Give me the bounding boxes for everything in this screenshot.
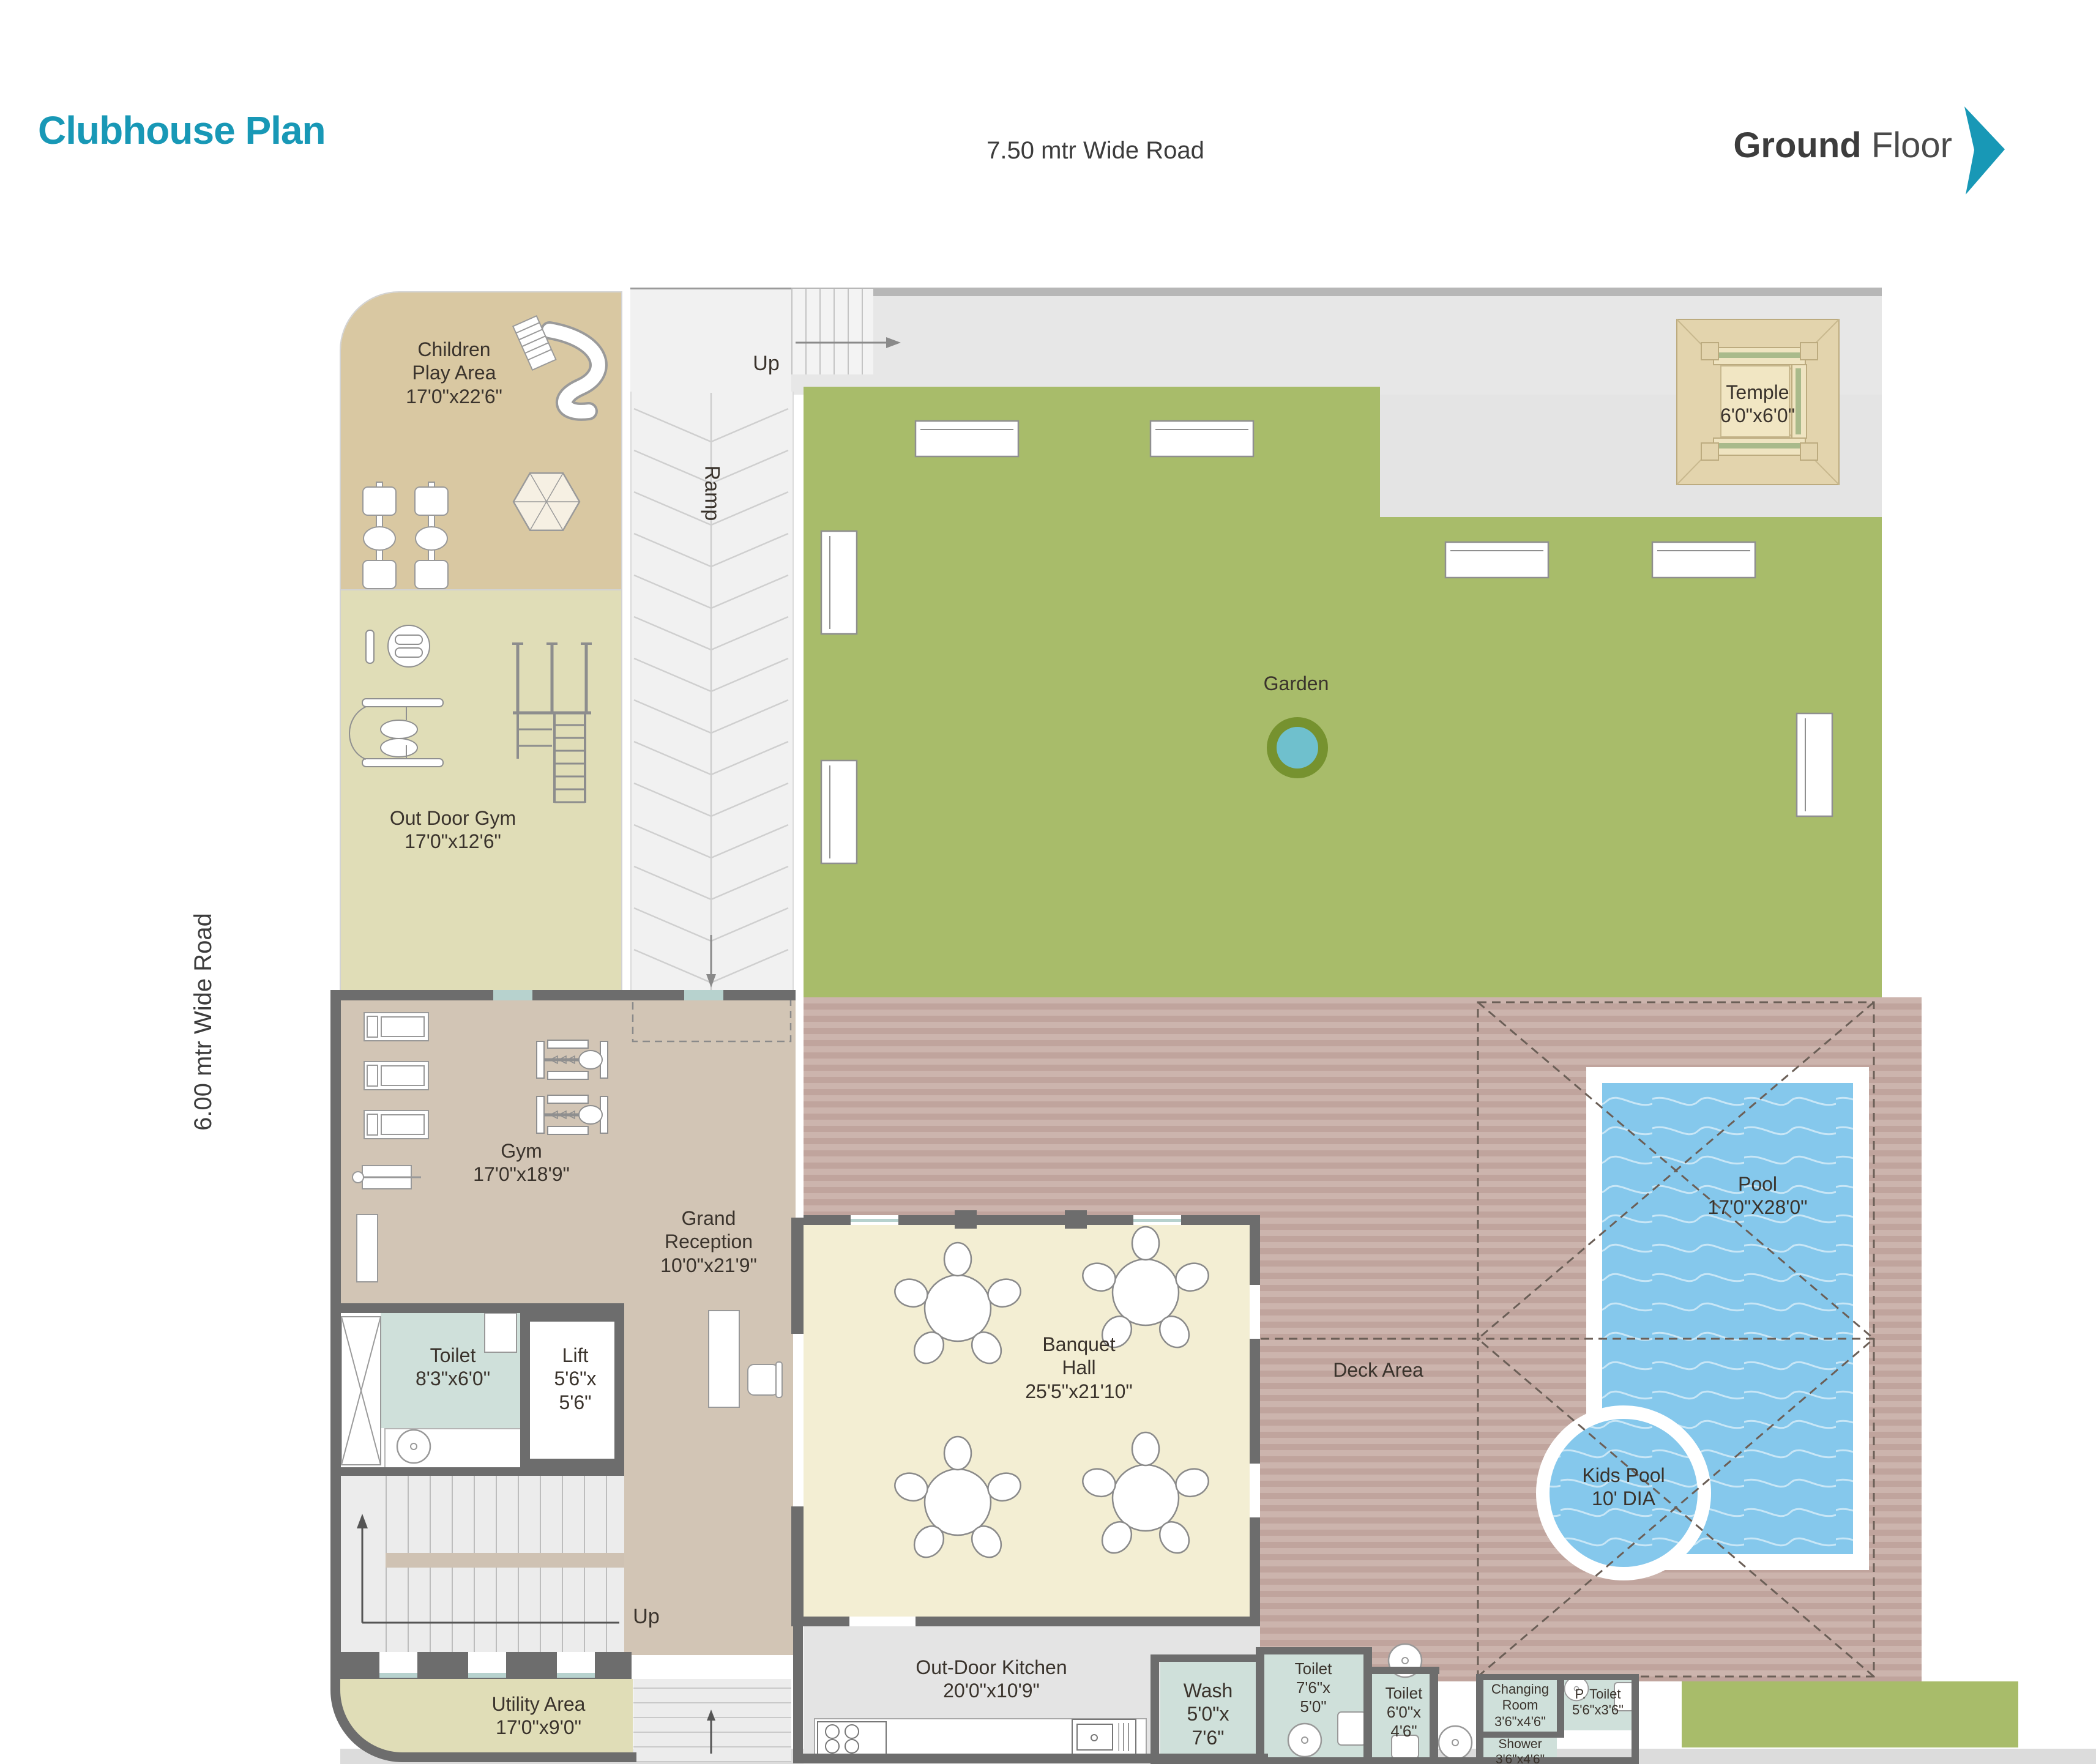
window-icon — [1133, 1219, 1181, 1222]
window-icon — [557, 1673, 595, 1678]
wash-label: Wash 5'0"x 7'6" — [1184, 1679, 1233, 1749]
clubhouse-floor-plan: Clubhouse Plan 7.50 mtr Wide Road Ground… — [0, 0, 2096, 1764]
temple-label: Temple 6'0"x6'0" — [1720, 381, 1795, 428]
gym-label: Gym 17'0"x18'9" — [473, 1139, 570, 1186]
wash-north-wall — [1151, 1654, 1264, 1662]
shower-label: Shower 3'6"x4'6" — [1496, 1736, 1545, 1764]
wall-notch — [557, 1652, 595, 1673]
toilet-block-north-wall — [330, 1303, 624, 1313]
temple-court — [1380, 395, 1882, 517]
page-title: Clubhouse Plan — [38, 108, 326, 153]
south-edge-wall — [1151, 1757, 1639, 1764]
road-label-left: 6.00 mtr Wide Road — [188, 913, 218, 1131]
kitchen-west-wall — [793, 1626, 803, 1757]
road-label-top: 7.50 mtr Wide Road — [986, 136, 1204, 165]
outdoor-gym-area — [341, 590, 621, 991]
window-icon — [684, 990, 723, 1000]
stairwell-north-wall — [330, 1467, 624, 1476]
wash-west-wall — [1151, 1654, 1159, 1758]
chevron-right-icon[interactable] — [1962, 105, 2007, 196]
ramp-label: Ramp — [699, 466, 725, 521]
kids-pool-label: Kids Pool 10' DIA — [1582, 1464, 1665, 1511]
reception-banquet-stub-n — [791, 1218, 804, 1334]
garden-area-east — [1380, 517, 1882, 997]
lift-east-wall — [614, 1313, 624, 1467]
outdoor-gym-label: Out Door Gym 17'0"x12'6" — [390, 806, 516, 854]
stairs-icon-utility — [633, 1679, 791, 1762]
west-outer-wall — [330, 990, 341, 1657]
changing-west-wall — [1476, 1674, 1483, 1764]
reception-banquet-stub-s — [791, 1506, 804, 1626]
banquet-east-wall — [1250, 1215, 1260, 1626]
floor-name-light: Floor — [1871, 125, 1952, 165]
column — [1065, 1210, 1087, 1229]
outdoor-kitchen-label: Out-Door Kitchen 20'0"x10'9" — [916, 1656, 1067, 1703]
toilet-main-vanity — [384, 1428, 521, 1468]
lift-north-wall — [520, 1313, 624, 1322]
toilet-60-label: Toilet 6'0"x 4'6" — [1386, 1684, 1423, 1741]
p-toilet-label: P. Toilet 5'6"x3'6" — [1572, 1686, 1624, 1719]
stairs-icon-lower-run — [386, 1568, 624, 1655]
garden-label: Garden — [1264, 672, 1329, 695]
lift-south-wall — [520, 1459, 624, 1467]
window-icon — [468, 1673, 506, 1678]
door-opening — [1250, 1464, 1260, 1517]
toilet-lift-divider — [520, 1313, 530, 1467]
up-label-bottom: Up — [633, 1604, 659, 1629]
toilet-main-label: Toilet 8'3"x6'0" — [416, 1344, 490, 1391]
floor-selector-label: Ground Floor — [1733, 125, 1952, 166]
wall-notch — [379, 1652, 417, 1673]
door-opening — [1250, 1285, 1260, 1339]
window-icon — [493, 990, 532, 1000]
toilet76-north-wall — [1256, 1647, 1372, 1654]
utility-area-label: Utility Area 17'0"x9'0" — [492, 1692, 586, 1740]
toilet60-east-wall — [1430, 1667, 1438, 1760]
deck-area-label: Deck Area — [1333, 1358, 1423, 1382]
cluster-east-wall — [1632, 1674, 1639, 1764]
stairs-icon-top — [791, 289, 873, 374]
changing-ptoilet-divider — [1557, 1674, 1564, 1735]
window-icon — [851, 1219, 898, 1222]
lift-label: Lift 5'6"x 5'6" — [554, 1344, 596, 1414]
door-opening — [849, 1617, 916, 1626]
gym-north-wall — [330, 990, 796, 1000]
grand-reception-label: Grand Reception 10'0"x21'9" — [660, 1207, 757, 1277]
deck-area-right — [1260, 1218, 1922, 1681]
changing-room-label: Changing Room 3'6"x4'6" — [1491, 1681, 1549, 1730]
grand-reception-area — [624, 1041, 793, 1655]
up-label-top: Up — [753, 351, 779, 376]
pool-label: Pool 17'0"X28'0" — [1707, 1172, 1807, 1219]
stair-landing-divider — [386, 1553, 624, 1568]
wash-toilet-divider — [1256, 1654, 1264, 1758]
garden-strip-southeast — [1682, 1681, 2018, 1747]
floor-name-bold: Ground — [1733, 125, 1861, 165]
toilet-divider — [1363, 1647, 1372, 1758]
banquet-hall-label: Banquet Hall 25'5"x21'10" — [1025, 1333, 1133, 1403]
children-play-label: Children Play Area 17'0"x22'6" — [406, 338, 502, 408]
stairs-icon-upper-run — [386, 1476, 624, 1553]
window-icon — [379, 1673, 417, 1678]
utility-outer-wall — [330, 1677, 636, 1762]
shaft-icon — [341, 1317, 381, 1465]
walkway-top-edge — [791, 288, 1882, 296]
wall-notch — [468, 1652, 506, 1673]
toilet-76-label: Toilet 7'6"x 5'0" — [1295, 1659, 1332, 1717]
ramp-vestibule — [630, 288, 791, 393]
banquet-hall — [804, 1218, 1260, 1626]
walkway-top — [791, 288, 1882, 395]
column — [955, 1210, 977, 1229]
